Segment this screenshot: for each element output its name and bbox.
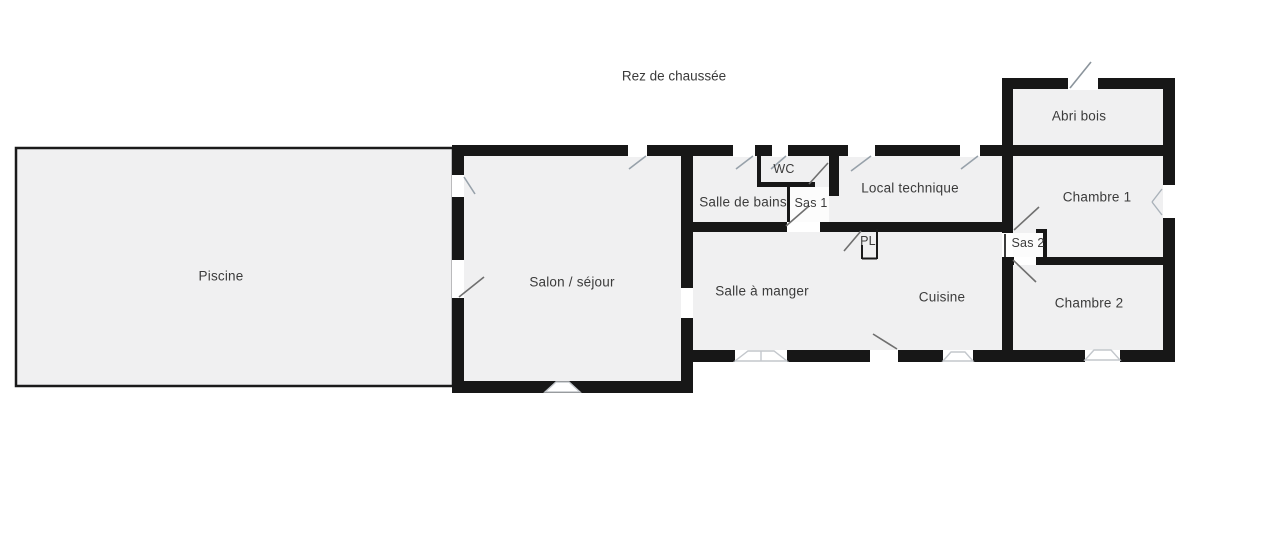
room-label-chambre-1: Chambre 1 xyxy=(1063,190,1132,205)
room-label-salle-a-manger: Salle à manger xyxy=(715,284,809,299)
wall-wc-left xyxy=(757,156,761,184)
room-label-chambre-2: Chambre 2 xyxy=(1055,296,1124,311)
room-label-local-technique: Local technique xyxy=(861,181,959,196)
wall-rightblock-right xyxy=(1163,78,1175,362)
page-title: Rez de chaussée xyxy=(622,69,726,84)
room-label-cuisine: Cuisine xyxy=(919,290,965,305)
opening-salon-left-window xyxy=(452,175,464,197)
opening-chambre1-window xyxy=(1163,185,1175,218)
opening-top-window-3 xyxy=(848,144,875,157)
opening-salon-left-door xyxy=(452,260,464,298)
room-label-piscine: Piscine xyxy=(199,269,244,284)
wall-sas1-left xyxy=(787,186,790,222)
room-label-abri-bois: Abri bois xyxy=(1052,109,1106,124)
opening-top-window-4 xyxy=(960,144,980,157)
wall-rightblock-left xyxy=(1002,78,1013,362)
opening-bains-door xyxy=(787,222,820,232)
opening-top-window-1 xyxy=(733,144,755,157)
room-label-salle-de-bains: Salle de bains xyxy=(699,195,787,210)
wall-top-main xyxy=(452,145,1175,156)
room-label-wc: WC xyxy=(773,162,794,176)
salon-area xyxy=(464,156,681,381)
opening-cuisine-door xyxy=(870,350,898,362)
room-label-pl: PL xyxy=(860,234,876,248)
wall-wc-bottom xyxy=(757,182,815,187)
wall-localtech-left xyxy=(829,145,839,196)
piscine-area xyxy=(16,148,453,386)
room-label-sas-2: Sas 2 xyxy=(1012,236,1045,250)
wall-mid-divider xyxy=(693,222,1002,232)
room-label-sas-1: Sas 1 xyxy=(795,196,828,210)
opening-salon-top-window xyxy=(628,144,647,157)
room-label-salon-sejour: Salon / séjour xyxy=(529,275,614,290)
wall-sas2-top-stub xyxy=(1036,229,1047,233)
opening-salon-passage xyxy=(681,288,693,318)
opening-top-window-2 xyxy=(772,144,788,157)
room-fills xyxy=(16,89,1163,386)
floor-plan-page: Rez de chaussée Piscine Salon / séjour S… xyxy=(0,0,1280,544)
opening-abri-door xyxy=(1068,77,1098,90)
